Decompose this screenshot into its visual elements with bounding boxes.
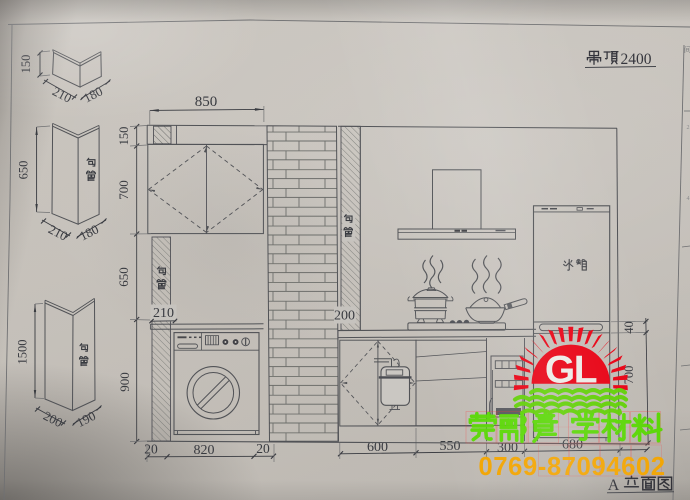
- svg-text:850: 850: [195, 94, 218, 110]
- svg-text:20: 20: [144, 442, 158, 457]
- svg-text:210: 210: [153, 306, 174, 321]
- svg-text:20: 20: [256, 441, 270, 456]
- svg-text:150: 150: [117, 127, 131, 146]
- svg-text:GL: GL: [545, 349, 597, 392]
- svg-text:700: 700: [116, 180, 131, 200]
- svg-text:1500: 1500: [16, 340, 30, 365]
- svg-text:650: 650: [116, 267, 131, 287]
- svg-text:200: 200: [41, 408, 65, 430]
- svg-text:间: 间: [684, 46, 690, 54]
- svg-text:40: 40: [622, 321, 636, 334]
- svg-text:0769-87094602: 0769-87094602: [478, 453, 665, 481]
- svg-text:650: 650: [17, 161, 31, 180]
- svg-text:550: 550: [440, 439, 461, 454]
- svg-text:4: 4: [687, 196, 690, 202]
- svg-text:820: 820: [194, 443, 215, 458]
- svg-text:2400: 2400: [621, 51, 652, 68]
- svg-text:180: 180: [81, 83, 105, 105]
- svg-text:900: 900: [117, 372, 132, 392]
- svg-text:2: 2: [687, 125, 690, 131]
- svg-text:210: 210: [50, 83, 74, 105]
- svg-text:200: 200: [334, 309, 355, 324]
- svg-text:150: 150: [19, 55, 33, 74]
